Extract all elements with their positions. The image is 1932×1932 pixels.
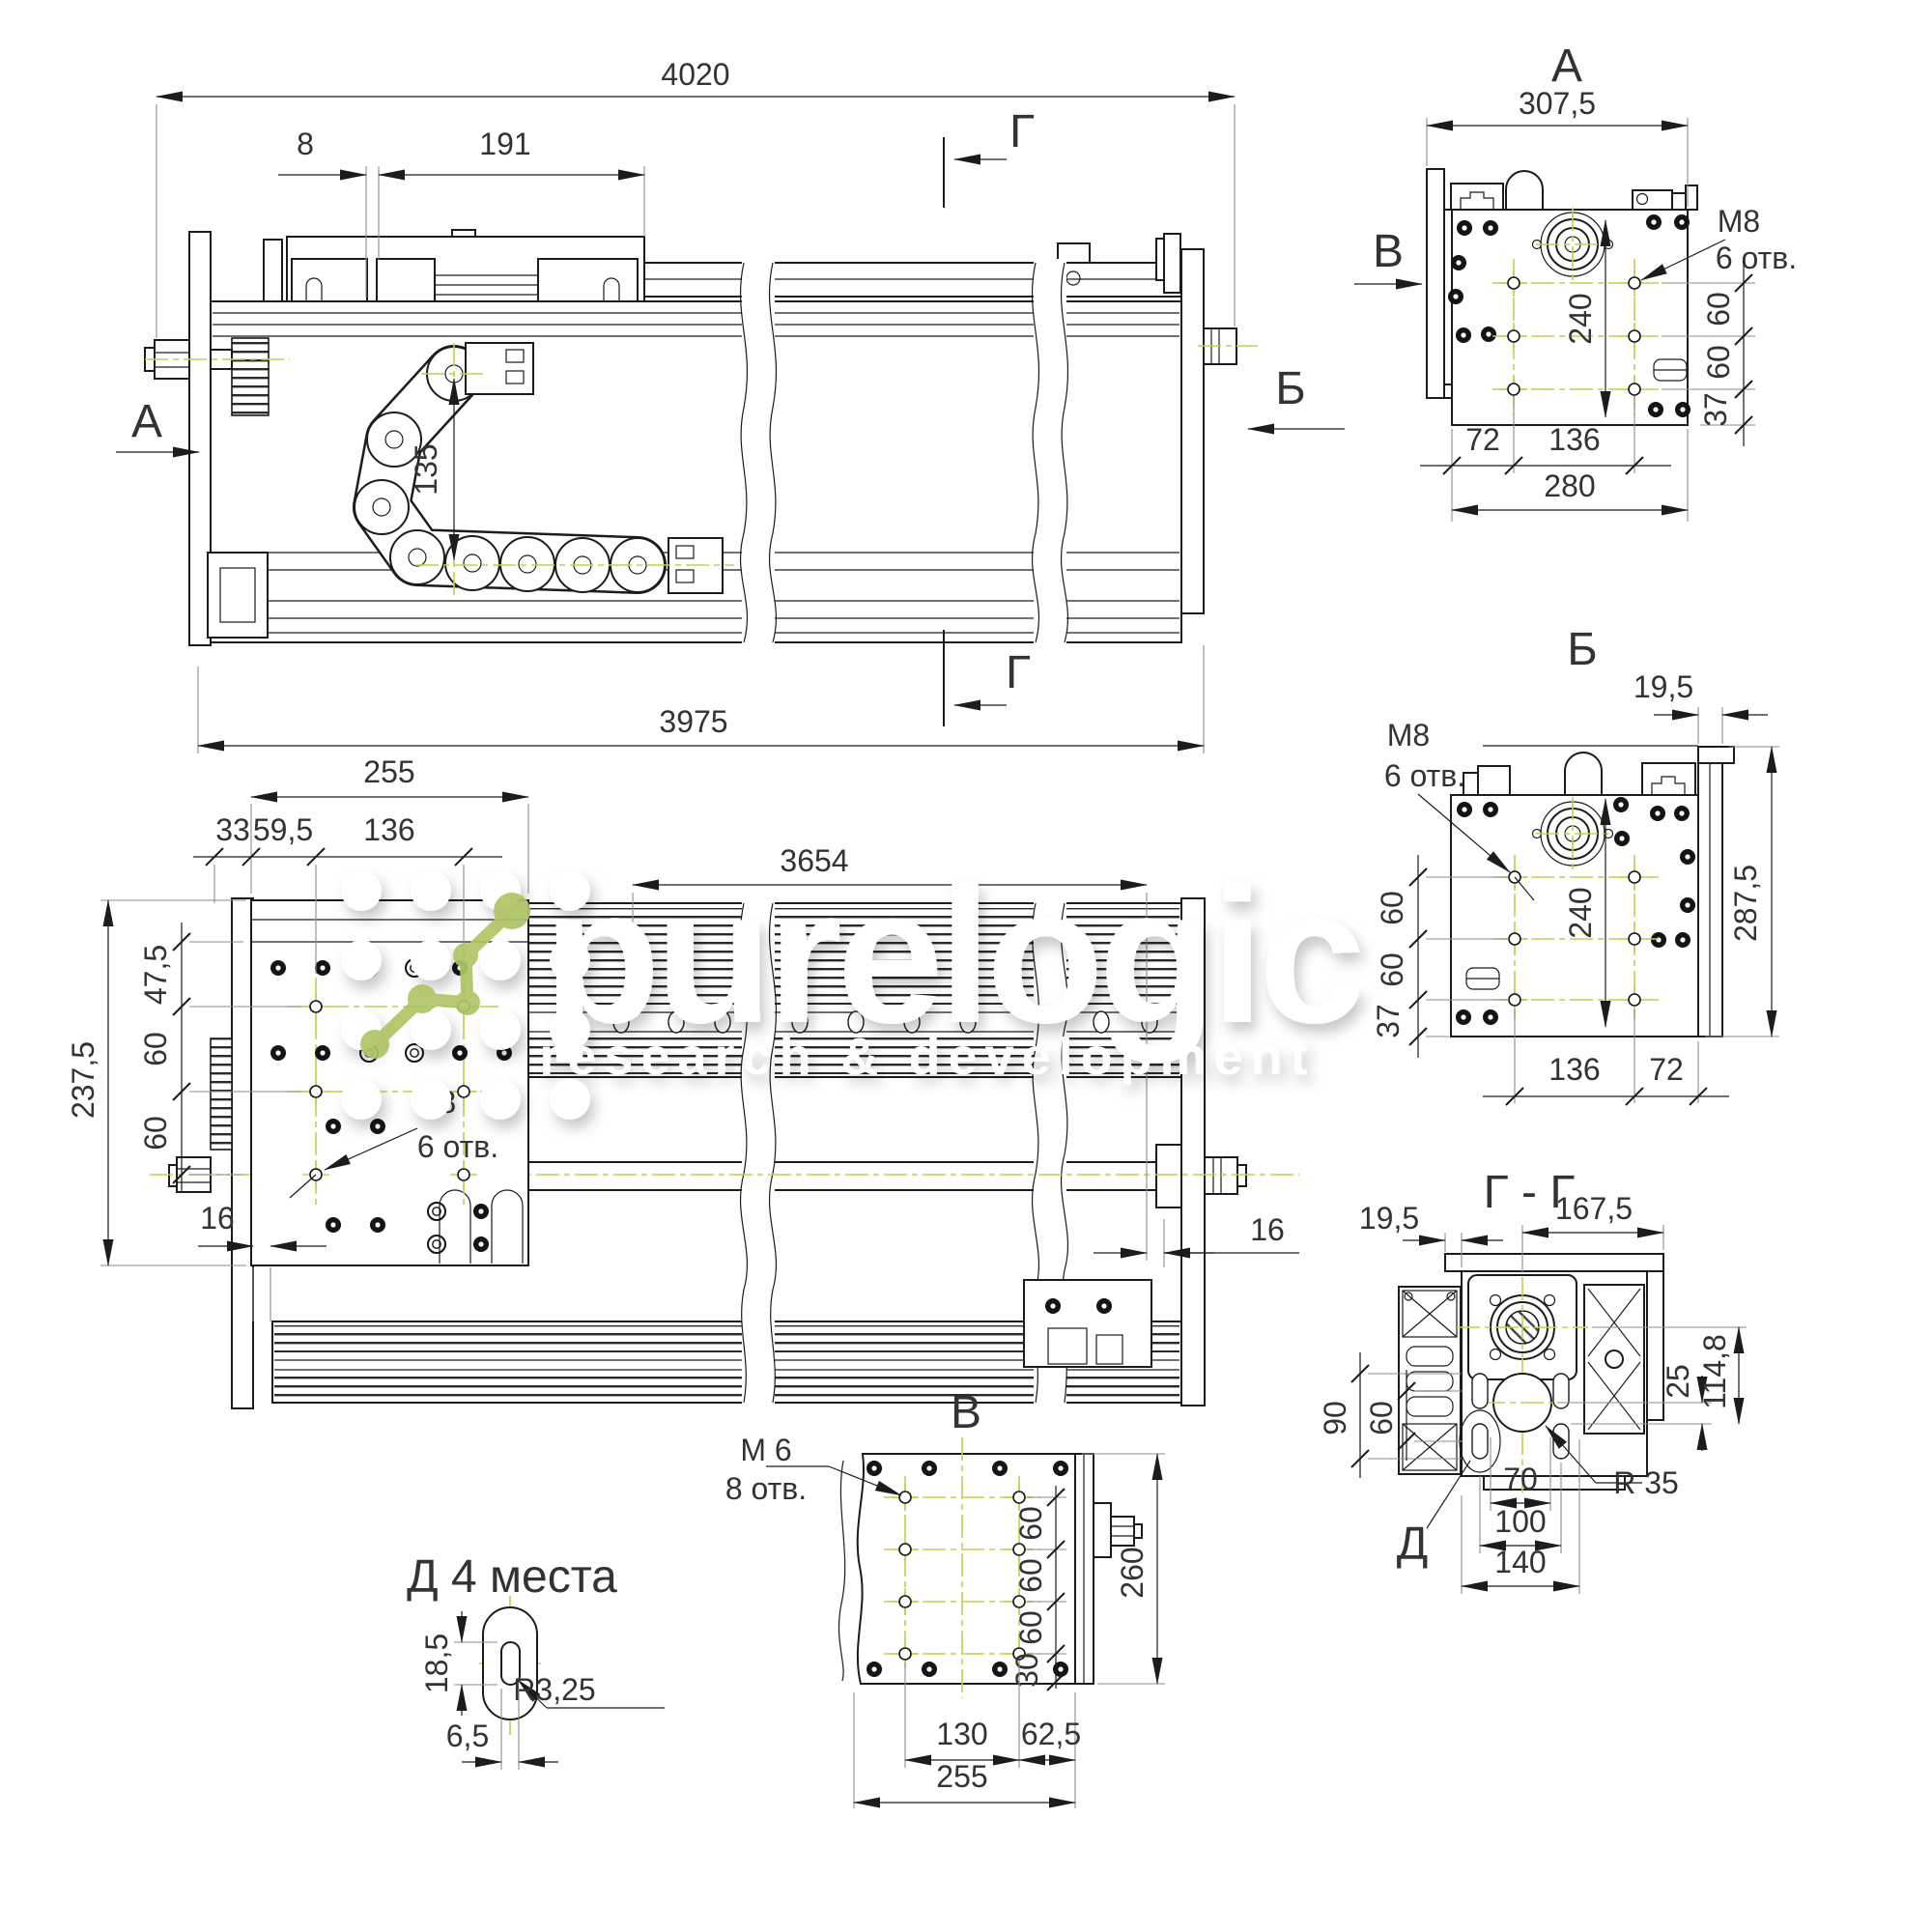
view-v-title: В bbox=[951, 1387, 981, 1438]
view-b-thread-holes: 6 отв. bbox=[1384, 758, 1465, 793]
view-arrow-a-label: А bbox=[131, 396, 162, 447]
dim-edge-left: 16 bbox=[200, 1201, 235, 1236]
dim-a-width: 307,5 bbox=[1519, 86, 1596, 121]
dim-v-height: 260 bbox=[1115, 1547, 1150, 1598]
view-b-thread-label: М8 bbox=[1387, 718, 1430, 753]
dim-gg-cover: 19,5 bbox=[1359, 1201, 1419, 1236]
dim-plate-height: 237,5 bbox=[66, 1041, 100, 1119]
dim-b-cover: 19,5 bbox=[1634, 669, 1693, 704]
view-a: А 307,5 В bbox=[1354, 41, 1797, 522]
dim-gg-radius: R 35 bbox=[1613, 1465, 1679, 1500]
ball-screw bbox=[528, 1162, 1181, 1190]
view-b-title: Б bbox=[1567, 624, 1598, 675]
gear-block bbox=[232, 338, 269, 415]
view-v-thread-holes: 8 отв. bbox=[725, 1471, 807, 1506]
plan-thread-holes: 6 отв. bbox=[417, 1129, 498, 1164]
view-b: Б 19,5 М8 bbox=[1371, 624, 1779, 1105]
dim-b-row2: 60 bbox=[1375, 952, 1409, 987]
dim-b-hole-span: 240 bbox=[1563, 887, 1598, 938]
dim-b-col-offset: 72 bbox=[1649, 1052, 1684, 1087]
dim-d-radius: R3,25 bbox=[513, 1672, 595, 1707]
view-a-dimensions: 307,5 В М8 6 отв. 240 60 60 37 72 136 28… bbox=[1354, 86, 1797, 522]
dim-gg-70: 70 bbox=[1503, 1462, 1538, 1496]
view-arrow-b-label: Б bbox=[1275, 363, 1306, 414]
section-mark-bottom: Г bbox=[1006, 647, 1031, 698]
dim-motor-offset: 8 bbox=[297, 127, 314, 161]
dim-v-row2: 60 bbox=[1013, 1558, 1048, 1593]
dim-top-offset: 47,5 bbox=[138, 945, 173, 1005]
section-mark-top: Г bbox=[1009, 106, 1035, 157]
dim-a-bottom-offset: 37 bbox=[1698, 392, 1733, 427]
dim-edge-right: 16 bbox=[1250, 1212, 1285, 1247]
view-v: В М 6 8 отв. 60 60 60 30 bbox=[725, 1387, 1165, 1808]
dim-b-height: 287,5 bbox=[1728, 865, 1763, 942]
dim-body-length: 3975 bbox=[659, 704, 727, 739]
dim-a-hole-span: 240 bbox=[1563, 293, 1598, 344]
dim-v-row1: 60 bbox=[1013, 1506, 1048, 1541]
dim-d-slot-width: 6,5 bbox=[446, 1719, 489, 1753]
dim-gg-114-8: 114,8 bbox=[1697, 1334, 1732, 1409]
detail-d: Д 4 места 18,5 R3,25 6,5 bbox=[407, 1551, 665, 1770]
dim-chain-height: 135 bbox=[409, 443, 443, 495]
dim-gg-width: 167,5 bbox=[1555, 1191, 1633, 1226]
dim-hole-spacing: 136 bbox=[363, 812, 414, 847]
carriage bbox=[264, 230, 644, 301]
dim-v-col-offset: 62,5 bbox=[1021, 1717, 1081, 1751]
view-a-thread-label: М8 bbox=[1718, 204, 1760, 239]
dim-hole-offset: 59,5 bbox=[253, 812, 313, 847]
dim-row-2: 60 bbox=[138, 1116, 173, 1151]
detail-d-dimensions: 18,5 R3,25 6,5 bbox=[419, 1611, 665, 1770]
view-a-body bbox=[1427, 169, 1697, 425]
dim-a-base-width: 280 bbox=[1544, 469, 1595, 503]
dim-row-1: 60 bbox=[138, 1032, 173, 1066]
dim-a-row1: 60 bbox=[1701, 292, 1736, 327]
dim-left-offset: 33 bbox=[215, 812, 250, 847]
front-view: 4020 8 191 135 3975 А Б Г Г bbox=[116, 57, 1345, 753]
dim-overall: 4020 bbox=[661, 57, 729, 92]
dim-v-width: 255 bbox=[936, 1759, 987, 1794]
dim-v-col-spacing: 130 bbox=[936, 1717, 987, 1751]
cad-drawing: 4020 8 191 135 3975 А Б Г Г bbox=[0, 0, 1932, 1932]
dim-gg-140: 140 bbox=[1494, 1545, 1546, 1579]
dim-gg-25: 25 bbox=[1661, 1364, 1695, 1399]
dim-b-bottom-offset: 37 bbox=[1371, 1004, 1406, 1038]
detail-d-mark: Д bbox=[1397, 1519, 1429, 1570]
section-gg: Г - Г bbox=[1318, 1167, 1747, 1594]
dim-plate-width: 255 bbox=[363, 754, 414, 789]
drawing-sheet: 4020 8 191 135 3975 А Б Г Г bbox=[0, 0, 1932, 1932]
dim-v-bottom-offset: 30 bbox=[1009, 1653, 1044, 1688]
view-a-title: А bbox=[1551, 41, 1582, 92]
dim-a-row2: 60 bbox=[1701, 345, 1736, 380]
dim-b-col-spacing: 136 bbox=[1548, 1052, 1600, 1087]
dim-b-row1: 60 bbox=[1375, 891, 1409, 925]
dim-a-col-spacing: 136 bbox=[1548, 422, 1600, 457]
view-arrow-v-label: В bbox=[1373, 226, 1404, 277]
dim-carriage: 191 bbox=[479, 127, 530, 161]
dim-v-row3: 60 bbox=[1013, 1610, 1048, 1645]
dim-d-slot-length: 18,5 bbox=[419, 1634, 454, 1693]
dim-gg-100: 100 bbox=[1494, 1504, 1546, 1539]
detail-d-title: Д 4 места bbox=[407, 1551, 617, 1603]
dim-gg-60: 60 bbox=[1364, 1401, 1399, 1435]
dim-a-col-offset: 72 bbox=[1465, 422, 1500, 457]
view-v-thread-label: М 6 bbox=[740, 1433, 791, 1467]
watermark-tagline: research & development bbox=[539, 1028, 1315, 1086]
view-a-thread-holes: 6 отв. bbox=[1716, 241, 1797, 275]
dim-gg-90: 90 bbox=[1318, 1401, 1352, 1435]
limit-switch bbox=[1024, 1280, 1151, 1367]
